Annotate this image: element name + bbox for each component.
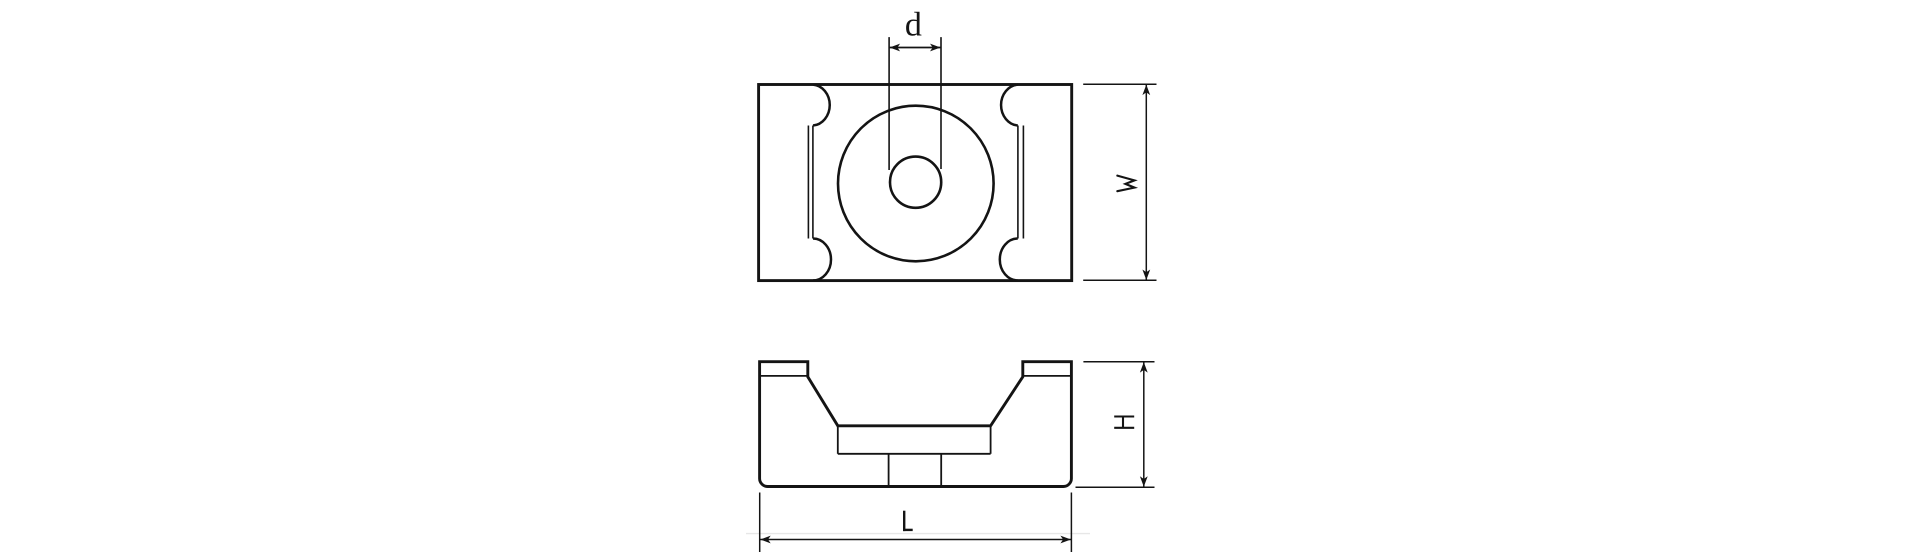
svg-text:d: d (905, 7, 922, 44)
